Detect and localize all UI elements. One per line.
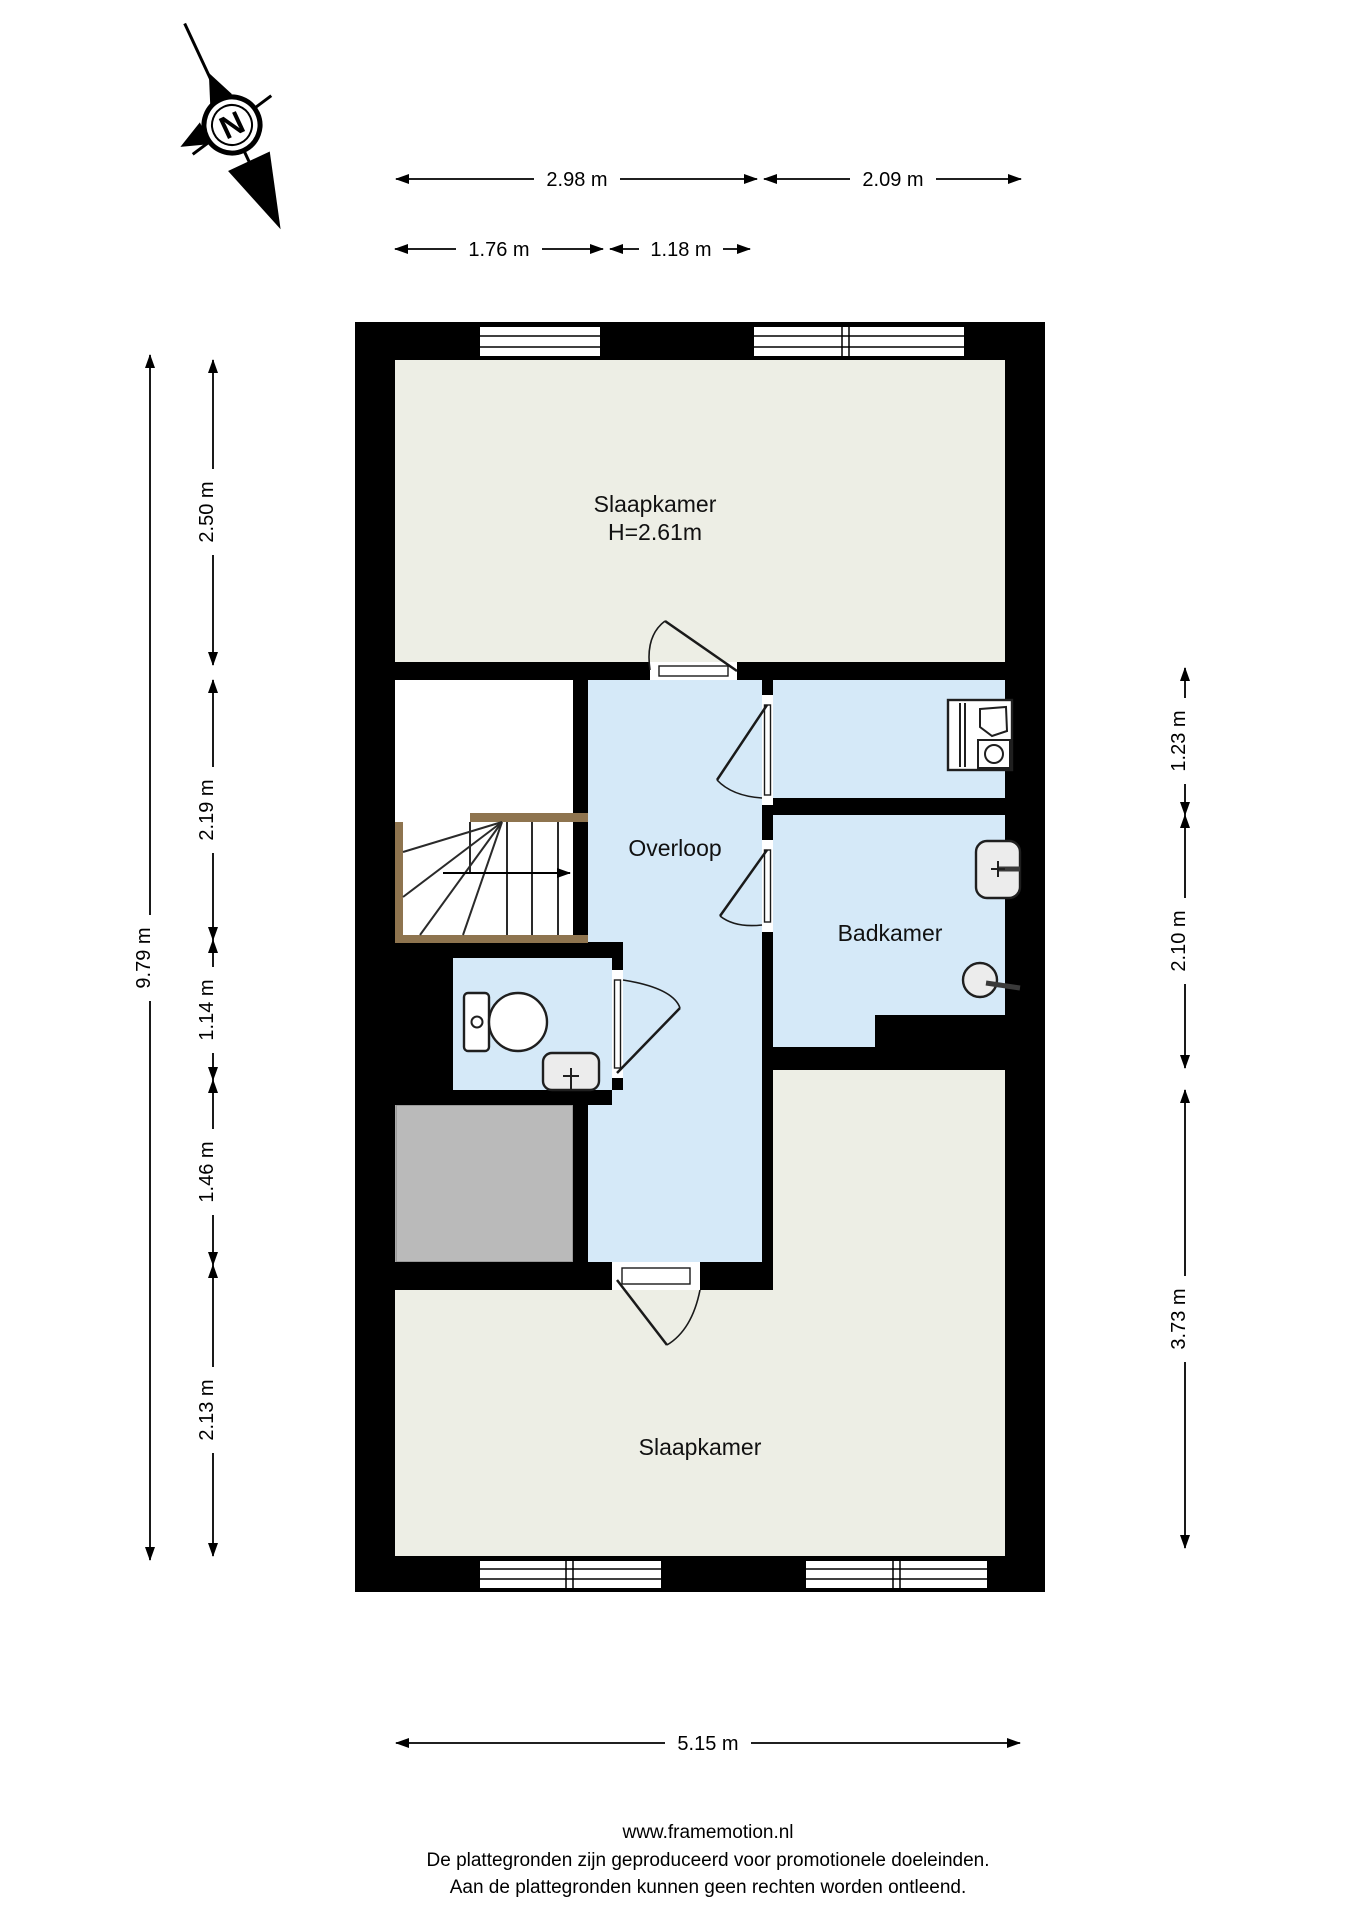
svg-text:2.50 m: 2.50 m [196, 481, 218, 542]
bedroom-bottom-label: Slaapkamer [639, 1434, 762, 1460]
wall-bedroombottom-north [395, 1262, 762, 1290]
footer-website: www.framemotion.nl [621, 1822, 793, 1843]
storage-block [396, 1105, 573, 1262]
wall-laundry-bathroom [773, 798, 1005, 815]
dim-top-3: 1.76 m [395, 239, 603, 261]
bedroom-top-height-note: H=2.61m [608, 519, 702, 545]
wall-storage-east [573, 1090, 588, 1262]
dim-top-1: 2.98 m [396, 169, 757, 191]
bedroom-top-label: Slaapkamer [594, 491, 717, 517]
svg-text:9.79 m: 9.79 m [133, 927, 155, 988]
dim-left-seg-3: 1.14 m [196, 940, 218, 1080]
svg-text:1.14 m: 1.14 m [196, 979, 218, 1040]
window-top-2 [753, 326, 965, 357]
svg-text:2.09 m: 2.09 m [862, 169, 923, 191]
wall-duct-block [395, 958, 453, 1090]
svg-text:1.76 m: 1.76 m [468, 239, 529, 261]
svg-text:2.98 m: 2.98 m [546, 169, 607, 191]
dim-right-seg-2: 2.10 m [1168, 815, 1190, 1068]
svg-text:2.19 m: 2.19 m [196, 779, 218, 840]
bathroom-label: Badkamer [838, 920, 943, 946]
toilet-icon [464, 993, 547, 1051]
dim-left-total: 9.79 m [133, 355, 155, 1560]
dim-top-2: 2.09 m [764, 169, 1021, 191]
dim-left-seg-2: 2.19 m [196, 680, 218, 940]
dim-bottom-total: 5.15 m [396, 1733, 1020, 1755]
window-bottom-1 [479, 1560, 662, 1589]
window-bottom-2 [805, 1560, 988, 1589]
closet-floor [395, 680, 573, 815]
dim-left-seg-5: 2.13 m [196, 1265, 218, 1556]
dim-right-seg-3: 3.73 m [1168, 1090, 1190, 1548]
footer-disclaimer-line1: De plattegronden zijn geproduceerd voor … [427, 1850, 990, 1871]
compass-rose-icon: N [134, 3, 324, 253]
wall-bathroom-block [875, 1015, 1005, 1055]
svg-text:2.10 m: 2.10 m [1168, 910, 1190, 971]
svg-text:3.73 m: 3.73 m [1168, 1288, 1190, 1349]
svg-text:5.15 m: 5.15 m [677, 1733, 738, 1755]
hand-basin-icon [543, 1053, 599, 1090]
window-top-1 [479, 326, 601, 357]
wall-right [1005, 322, 1045, 1592]
wall-closet-east [573, 680, 588, 942]
svg-text:2.13 m: 2.13 m [196, 1379, 218, 1440]
washing-machine-icon [948, 700, 1012, 770]
dim-left-seg-4: 1.46 m [196, 1080, 218, 1265]
floor-plan-canvas: Slaapkamer H=2.61m Overloop Badkamer Sla… [0, 0, 1358, 1920]
svg-text:1.46 m: 1.46 m [196, 1141, 218, 1202]
stair-floor [395, 815, 588, 942]
wall-under-stairs [395, 942, 623, 958]
footer-disclaimer-line2: Aan de plattegronden kunnen geen rechten… [450, 1877, 967, 1898]
washbasin-icon [976, 841, 1020, 898]
landing-label: Overloop [628, 835, 721, 861]
wall-left [355, 322, 395, 1592]
dim-right-seg-1: 1.23 m [1168, 668, 1190, 815]
svg-text:1.23 m: 1.23 m [1168, 710, 1190, 771]
svg-text:1.18 m: 1.18 m [650, 239, 711, 261]
dim-top-4: 1.18 m [610, 239, 750, 261]
bedroom-bottom-floor [395, 1290, 1005, 1556]
